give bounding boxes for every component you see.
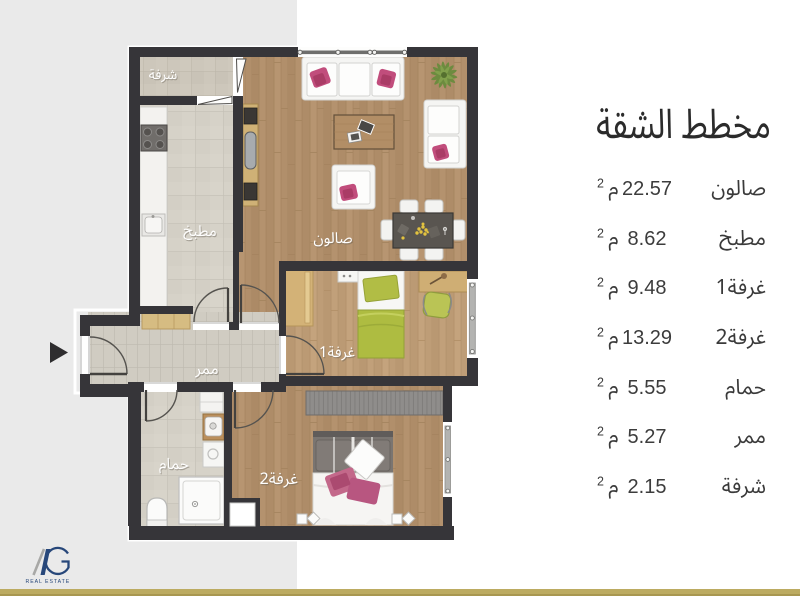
svg-text:2: 2 — [597, 177, 604, 191]
svg-text:2: 2 — [597, 276, 604, 290]
svg-text:13.29: 13.29 — [622, 327, 672, 349]
svg-text:9.48: 9.48 — [628, 277, 667, 299]
svg-text:REAL ESTATE: REAL ESTATE — [26, 579, 71, 585]
svg-text:2: 2 — [597, 425, 604, 439]
svg-text:5.55: 5.55 — [628, 377, 667, 399]
svg-text:2: 2 — [597, 475, 604, 489]
svg-text:2.15: 2.15 — [628, 476, 667, 498]
svg-text:5.27: 5.27 — [628, 426, 667, 448]
svg-text:2: 2 — [597, 376, 604, 390]
svg-text:2: 2 — [597, 326, 604, 340]
svg-text:2: 2 — [597, 227, 604, 241]
svg-text:8.62: 8.62 — [628, 228, 667, 250]
svg-text:22.57: 22.57 — [622, 178, 672, 200]
